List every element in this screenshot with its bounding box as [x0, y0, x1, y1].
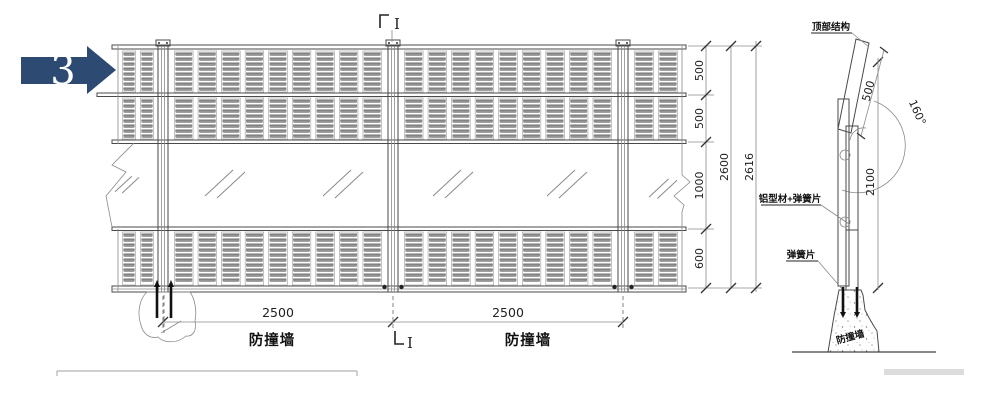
post — [156, 40, 170, 292]
dim-panel-500: 500 — [860, 79, 878, 103]
aluminum-profile-outline — [838, 99, 849, 286]
louver-strip — [363, 98, 382, 139]
louver-strip — [593, 232, 612, 285]
louver-strip — [659, 232, 678, 285]
louver-strip — [269, 51, 288, 92]
dim-segment-1000: 1000 — [693, 172, 706, 200]
louver-strip — [175, 98, 194, 139]
glass-slash — [115, 176, 132, 192]
louver-strip — [659, 98, 678, 139]
louver-strip — [405, 98, 424, 139]
louver-strip — [123, 232, 136, 285]
louver-panels — [123, 51, 678, 285]
aluminum-profile-label: 铝型材+弹簧片 — [759, 193, 822, 205]
louver-strip — [569, 98, 588, 139]
dim-angle-160: 160° — [906, 98, 929, 127]
section-view: 500 160° 2100 顶部结构 铝型材+弹簧片 弹簧片 防撞墙 — [759, 21, 936, 352]
louver-strip — [475, 98, 494, 139]
dim-post-2100: 2100 — [864, 168, 877, 196]
post — [612, 40, 633, 292]
dim-span-2500b: 2500 — [492, 305, 524, 320]
louver-strip — [546, 98, 565, 139]
gray-artifact-bar — [884, 369, 964, 375]
step-number: 3 — [50, 48, 75, 94]
louver-strip — [475, 51, 494, 92]
glass-slash — [559, 172, 587, 198]
elevation-view — [97, 40, 690, 342]
louver-strip — [546, 51, 565, 92]
louver-strip — [316, 232, 335, 285]
louver-strip — [339, 98, 358, 139]
glass-slash — [205, 170, 233, 196]
glass-slash — [323, 170, 351, 196]
louver-strip — [363, 51, 382, 92]
louver-strip — [339, 51, 358, 92]
louver-strip — [635, 232, 654, 285]
louver-strip — [405, 232, 424, 285]
louver-strip — [593, 98, 612, 139]
louver-strip — [292, 232, 311, 285]
dim-subtotal-2600: 2600 — [718, 153, 731, 181]
frame-artifacts — [57, 369, 964, 376]
louver-strip — [593, 51, 612, 92]
louver-strip — [569, 51, 588, 92]
height-dimension-chain: 500 500 1000 600 2600 2616 — [158, 41, 883, 327]
louver-strip — [123, 51, 136, 92]
louver-strip — [475, 232, 494, 285]
glass-slash — [433, 170, 461, 196]
louver-strip — [405, 51, 424, 92]
glass-slash — [547, 170, 575, 196]
glass-slash — [649, 179, 669, 197]
louver-strip — [245, 98, 264, 139]
louver-strip — [659, 51, 678, 92]
dimension-ticks — [158, 41, 883, 327]
drawing-canvas: I I 500 500 1000 600 2600 2616 2500 2500… — [0, 0, 1000, 403]
louver-strip — [222, 51, 241, 92]
louver-strip — [363, 232, 382, 285]
louver-strip — [222, 232, 241, 285]
louver-strip — [452, 98, 471, 139]
dim-segment-600: 600 — [693, 248, 706, 269]
dim-total-2616: 2616 — [743, 153, 756, 181]
louver-strip — [141, 98, 154, 139]
louver-strip — [452, 51, 471, 92]
glass-slash — [217, 172, 245, 198]
louver-strip — [499, 232, 518, 285]
louver-strip — [198, 98, 217, 139]
spring-plate-label: 弹簧片 — [787, 249, 816, 261]
louver-strip — [198, 51, 217, 92]
louver-strip — [269, 232, 288, 285]
crash-wall-label-right: 防撞墙 — [505, 331, 552, 349]
post-upper — [846, 126, 858, 230]
louver-strip — [339, 232, 358, 285]
louver-strip — [175, 232, 194, 285]
louver-strip — [428, 98, 447, 139]
dim-segment-500a: 500 — [693, 60, 706, 81]
crash-wall-label-left: 防撞墙 — [249, 331, 296, 349]
louver-strip — [123, 98, 136, 139]
louver-strip — [569, 232, 588, 285]
glass-slash — [122, 177, 139, 193]
louver-strip — [316, 98, 335, 139]
louver-strip — [522, 51, 541, 92]
louver-strip — [546, 232, 565, 285]
section-cut-label-top: I — [394, 15, 400, 33]
louver-strip — [141, 232, 154, 285]
glass-panel-marks — [115, 170, 677, 199]
louver-strip — [499, 98, 518, 139]
louver-strip — [635, 51, 654, 92]
louver-strip — [316, 51, 335, 92]
dim-span-2500a: 2500 — [262, 305, 294, 320]
louver-strip — [198, 232, 217, 285]
louver-strip — [245, 51, 264, 92]
louver-strip — [245, 232, 264, 285]
louver-strip — [499, 51, 518, 92]
louver-strip — [522, 98, 541, 139]
louver-strip — [452, 232, 471, 285]
louver-strip — [292, 51, 311, 92]
post-lower-hatched — [846, 230, 858, 290]
section-cut-label-bottom: I — [407, 334, 413, 352]
louver-strip — [141, 51, 154, 92]
top-structure-label: 顶部结构 — [812, 21, 851, 33]
louver-strip — [635, 98, 654, 139]
louver-strip — [428, 51, 447, 92]
glass-slash — [335, 172, 363, 198]
louver-strip — [175, 51, 194, 92]
post — [382, 40, 403, 292]
louver-strip — [292, 98, 311, 139]
dim-segment-500b: 500 — [693, 108, 706, 129]
louver-strip — [428, 232, 447, 285]
louver-strip — [222, 98, 241, 139]
louver-strip — [269, 98, 288, 139]
louver-strip — [522, 232, 541, 285]
step-arrow: 3 — [21, 46, 116, 94]
glass-slash — [445, 172, 473, 198]
anchor-bolts — [154, 280, 174, 333]
